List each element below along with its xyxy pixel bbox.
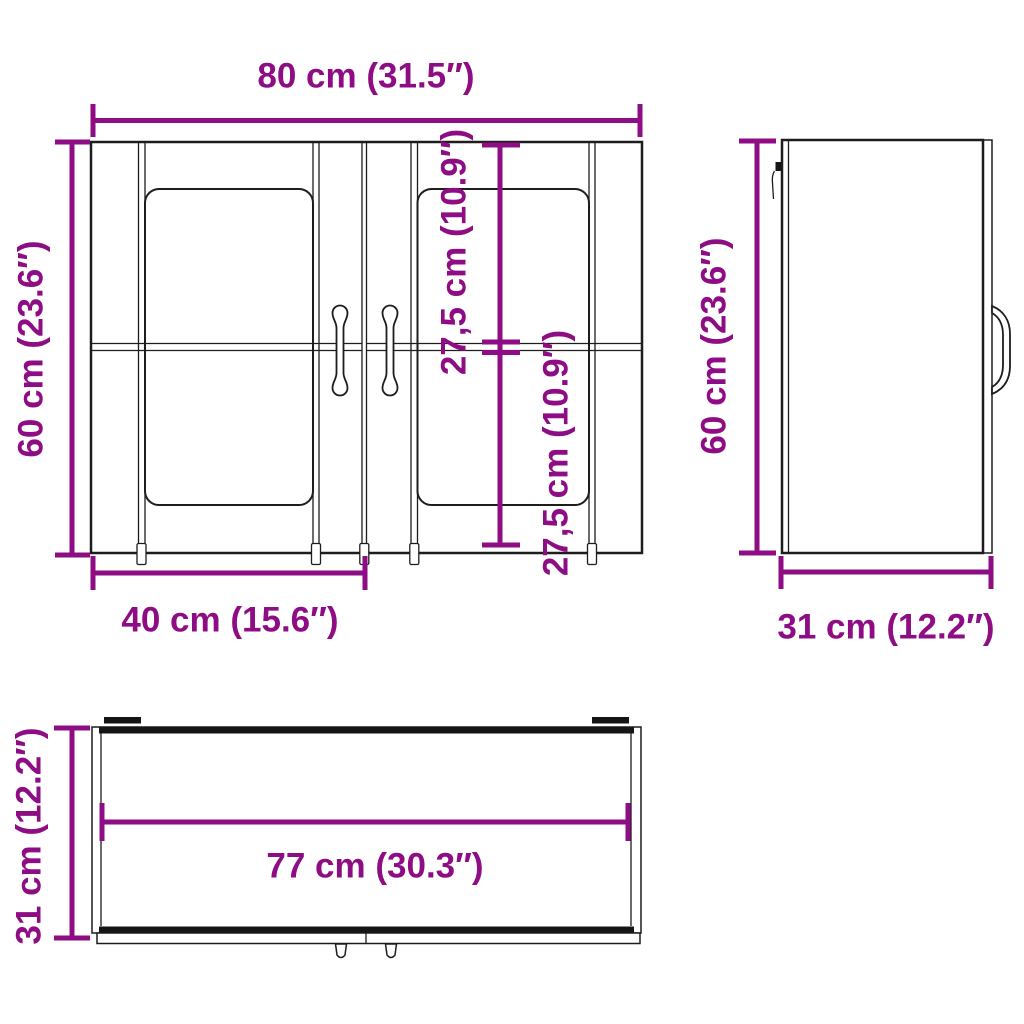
top-right-hinge <box>592 717 629 724</box>
top-inner-width-label: 77 cm (30.3″) <box>266 847 483 886</box>
front-door-width-dimension <box>93 556 365 590</box>
front-width-label: 80 cm (31.5″) <box>257 57 474 96</box>
side-height-label: 60 cm (23.6″) <box>695 237 734 454</box>
top-view <box>92 717 641 958</box>
side-hinge-detail <box>772 162 781 199</box>
top-depth-dimension <box>54 728 90 938</box>
front-door-width-label: 40 cm (15.6″) <box>121 601 338 640</box>
side-handle <box>992 306 1010 394</box>
top-back-edge <box>99 727 634 734</box>
cabinet-dimension-diagram: 80 cm (31.5″) 60 cm (23.6″) 40 cm (15.6″… <box>0 0 1024 1024</box>
side-depth-dimension <box>781 556 991 589</box>
top-body-outline <box>92 727 641 933</box>
top-left-handle <box>336 944 347 958</box>
front-height-dimension <box>55 142 90 555</box>
diagram-canvas: 80 cm (31.5″) 60 cm (23.6″) 40 cm (15.6″… <box>0 0 1024 1024</box>
front-width-dimension <box>93 104 640 137</box>
top-door-strip <box>97 933 640 944</box>
front-height-label: 60 cm (23.6″) <box>12 240 51 457</box>
side-depth-label: 31 cm (12.2″) <box>777 608 994 647</box>
side-door-slab <box>983 140 992 553</box>
front-upper-glass-label: 27,5 cm (10.9″) <box>435 129 474 375</box>
side-body-outline <box>782 140 983 553</box>
top-depth-label: 31 cm (12.2″) <box>10 727 49 944</box>
top-right-handle <box>386 944 397 958</box>
top-left-hinge <box>104 717 141 724</box>
top-front-edge <box>99 927 634 934</box>
front-lower-glass-label: 27,5 cm (10.9″) <box>537 330 576 576</box>
side-height-dimension <box>739 141 776 553</box>
side-view <box>772 140 1010 553</box>
